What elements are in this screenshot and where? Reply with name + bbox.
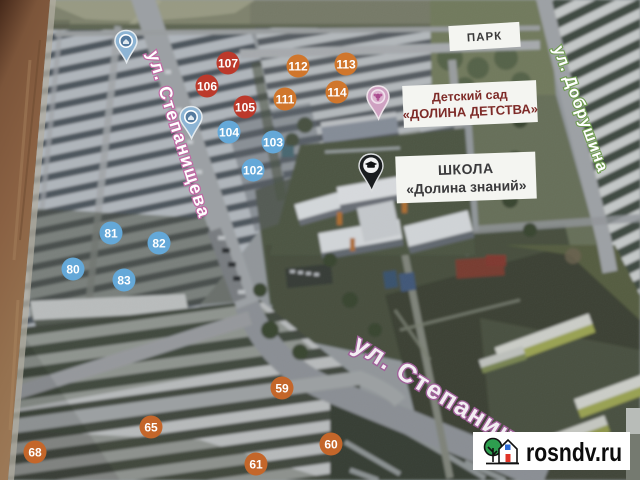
svg-text:114: 114 (327, 86, 347, 100)
svg-text:ШКОЛА: ШКОЛА (438, 160, 494, 178)
svg-text:60: 60 (324, 438, 338, 452)
svg-text:83: 83 (117, 274, 131, 288)
svg-text:104: 104 (219, 126, 239, 140)
svg-text:105: 105 (235, 101, 255, 115)
svg-text:102: 102 (243, 164, 263, 178)
svg-text:59: 59 (275, 382, 289, 396)
svg-text:106: 106 (197, 80, 217, 94)
svg-text:82: 82 (152, 237, 166, 251)
svg-text:81: 81 (104, 227, 118, 241)
svg-text:80: 80 (66, 263, 80, 277)
svg-text:107: 107 (218, 57, 238, 71)
svg-text:112: 112 (288, 60, 308, 74)
svg-text:111: 111 (276, 93, 295, 107)
svg-text:68: 68 (28, 446, 42, 460)
svg-text:ПАРК: ПАРК (467, 30, 503, 44)
svg-text:113: 113 (336, 58, 356, 72)
svg-text:65: 65 (144, 421, 158, 435)
svg-text:103: 103 (263, 136, 283, 150)
svg-text:61: 61 (249, 458, 263, 472)
svg-text:rosndv.ru: rosndv.ru (526, 437, 622, 467)
